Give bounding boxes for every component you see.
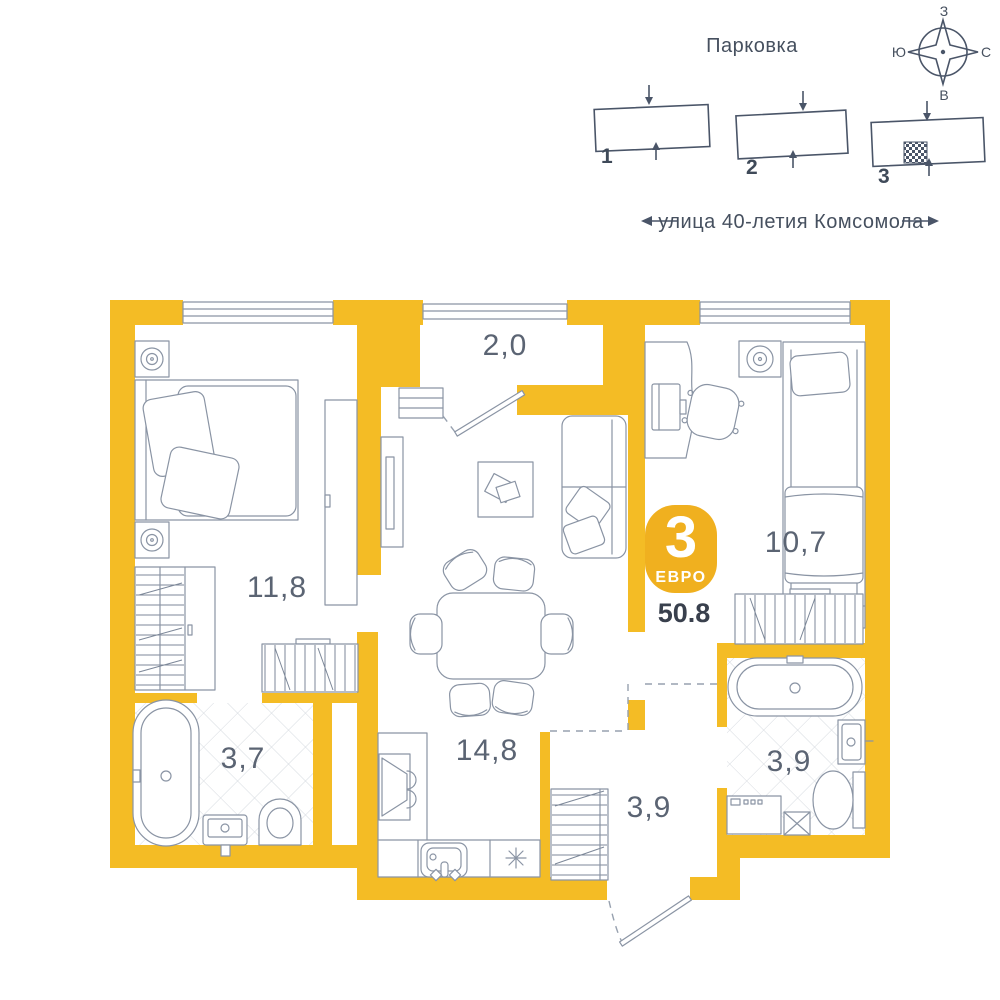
balcony-furniture xyxy=(399,388,443,418)
balcony-door xyxy=(443,391,525,437)
street-name: улица 40-летия Комсомола xyxy=(658,211,924,233)
bathtub xyxy=(133,700,199,846)
dining-chair xyxy=(491,679,535,716)
dining-chair xyxy=(410,614,442,654)
dining-table xyxy=(437,593,545,679)
entrance-door xyxy=(609,896,691,946)
tv-stand xyxy=(381,437,403,547)
dining-chair xyxy=(541,614,573,654)
toilet-2 xyxy=(813,771,865,829)
compass-rose-icon: З Ю С В xyxy=(892,3,991,103)
vent-shaft xyxy=(784,812,810,835)
total-area-value: 50.8 xyxy=(658,598,711,628)
area-bedroom-2: 10,7 xyxy=(765,526,827,559)
wardrobe xyxy=(325,400,357,605)
building-1: 1 xyxy=(594,85,710,168)
wardrobe-2 xyxy=(735,589,863,644)
nightstand xyxy=(135,522,169,558)
badge-layout-type: ЕВРО xyxy=(655,569,706,586)
area-kitchen-living: 14,8 xyxy=(456,734,518,767)
floorplan-drawing: Парковка З Ю С В 1 2 xyxy=(0,0,1000,1000)
building-number: 1 xyxy=(601,145,613,168)
parking-title: Парковка xyxy=(706,35,798,57)
compass-west: З xyxy=(940,3,948,19)
double-bed xyxy=(135,380,298,521)
apartment-plan: 11,8 2,0 10,7 14,8 3,7 3,9 3,9 3 ЕВРО 50… xyxy=(110,300,890,946)
window-bedroom xyxy=(183,302,333,323)
building-2: 2 xyxy=(736,91,848,179)
compass-south: Ю xyxy=(892,44,906,60)
area-bedroom: 11,8 xyxy=(247,571,307,604)
area-bathroom: 3,7 xyxy=(221,742,266,775)
compass-east: В xyxy=(939,87,948,103)
toilet xyxy=(259,799,301,845)
nightstand xyxy=(739,341,781,377)
apartment-type-badge: 3 ЕВРО 50.8 xyxy=(645,505,717,628)
window-bedroom-2 xyxy=(700,302,850,323)
window-balcony xyxy=(423,304,567,319)
dining-chair xyxy=(492,556,535,592)
bedroom-furniture xyxy=(135,341,358,692)
site-plan: Парковка З Ю С В 1 2 xyxy=(594,3,991,233)
bathtub-2 xyxy=(728,656,862,716)
building-number: 3 xyxy=(878,165,890,188)
street-label-row: улица 40-летия Комсомола xyxy=(641,211,939,233)
nightstand xyxy=(135,341,169,377)
hob-symbol-icon xyxy=(506,848,526,868)
coffee-table xyxy=(478,462,533,517)
closet xyxy=(262,639,358,692)
building-3-current: 3 xyxy=(871,101,985,188)
badge-rooms-count: 3 xyxy=(665,505,697,570)
desk xyxy=(645,342,694,458)
hall-furniture xyxy=(551,789,608,880)
windows xyxy=(183,302,850,323)
dresser xyxy=(399,388,443,418)
apartment-location-marker xyxy=(904,142,927,163)
single-bed xyxy=(783,342,865,628)
dressing-closet xyxy=(135,567,215,690)
corner-sofa xyxy=(562,416,626,558)
building-number: 2 xyxy=(746,156,758,179)
floorplan-page: Парковка З Ю С В 1 2 xyxy=(0,0,1000,1000)
dining-chair xyxy=(440,546,491,594)
kitchen-sink xyxy=(421,843,467,881)
area-bathroom-2: 3,9 xyxy=(767,745,812,778)
area-hall: 3,9 xyxy=(627,791,672,824)
dining-chair xyxy=(449,683,491,718)
area-balcony: 2,0 xyxy=(483,329,528,362)
stove xyxy=(379,754,416,820)
washing-machine xyxy=(727,796,781,834)
compass-north: С xyxy=(981,44,991,60)
hall-wardrobe xyxy=(551,789,608,880)
